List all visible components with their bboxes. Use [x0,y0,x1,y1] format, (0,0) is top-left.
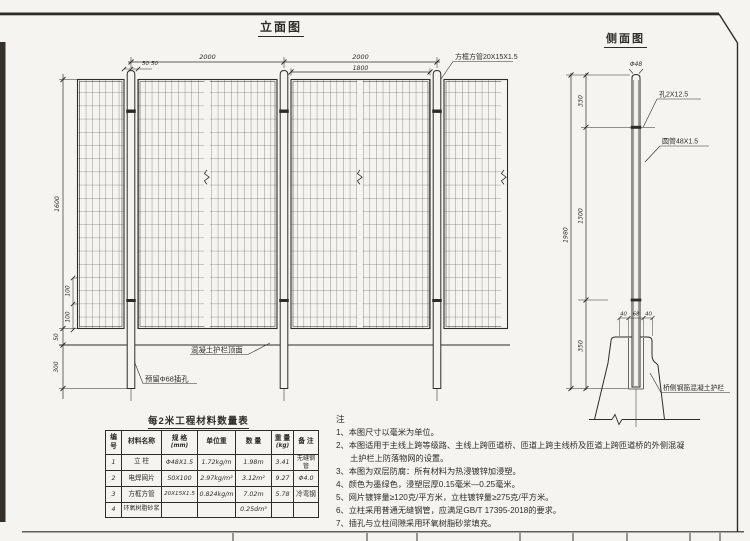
dim-mid: 1300 [578,208,585,224]
dim-embed-side: 350 [578,340,585,352]
cell-spec: 50X100 [162,471,198,487]
cell-unit: 2.97kg/m² [198,471,236,487]
dim-gap1: 50 [142,61,150,67]
table-row: 2 电焊网片 50X100 2.97kg/m² 3.12m² 9.27 Φ4.0 [106,471,319,487]
post-centerlines [131,389,437,402]
cell-name: 方框方管 [122,487,162,503]
notes-heading: 注 [336,413,688,426]
header-remark: 备 注 [294,431,319,455]
cell-weight [272,503,294,518]
header-no: 编号 [106,431,122,455]
cell-unit: 0.824kg/m [198,487,236,503]
frame-tube-label: 方框方管20X15X1.5 [455,52,518,61]
dim-row2: 100 [66,311,72,322]
dim-row1: 100 [66,285,72,296]
cell-weight: 3.41 [272,455,294,471]
header-name: 材料名称 [122,431,162,455]
front-view-title: 立面图 [258,18,304,37]
dim-height: 1600 [54,196,61,212]
tube-label: 圆管48X1.5 [662,137,698,146]
cell-remark: 冷弯钢 [294,487,319,503]
cell-name: 环氧树脂砂浆 [122,503,162,518]
concrete-top-label: 混凝土护栏顶面 [191,346,243,355]
notes-block: 注 1、本图尺寸以毫米为单位。 2、本图适用于主线上跨等级路、主线上跨匝道桥、匝… [336,413,688,530]
barrier-profile [589,337,700,425]
materials-table-title: 每2米工程材料数量表 [148,413,249,429]
title-block-ticks [233,533,720,541]
note-item: 2、本图适用于主线上跨等级路、主线上跨匝道桥、匝道上跨主线桥及匝道上跨匝道桥的外… [336,439,688,465]
dim-span1: 2000 [199,53,216,61]
cell-no: 1 [106,455,122,471]
note-item: 7、插孔与立柱间隙采用环氧树脂砂浆填充。 [336,517,688,530]
table-row: 4 环氧树脂砂浆 0.25dm³ [106,503,319,518]
dim-total: 1980 [563,227,570,243]
dim-embed: 300 [54,361,60,372]
cell-weight: 5.78 [272,487,294,503]
header-weight: 重 量(kg) [272,431,294,455]
table-header-row: 编号 材料名称 规 格(mm) 单位重 数 量 重 量(kg) 备 注 [106,431,319,455]
dim-base-mid: 68 [633,312,640,318]
cell-remark [294,503,319,518]
dim-gap2: 50 [151,61,159,67]
cell-remark: 无缝钢管 [294,455,319,471]
note-item: 6、立柱采用普通无缝钢管，应满足GB/T 17395-2018的要求。 [336,504,688,517]
cell-qty: 0.25dm³ [236,503,272,518]
side-view-title: 侧面图 [604,30,647,48]
side-post [620,75,655,428]
header-quantity: 数 量 [236,431,272,455]
table-row: 3 方框方管 20X15X1.5 0.824kg/m 7.02m 5.78 冷弯… [106,487,319,503]
drawing-sheet: 2000 2000 1800 50 50 1600 100 100 50 300 [0,0,750,541]
note-item: 5、网片镀锌量≥120克/平方米，立柱镀锌量≥275克/平方米。 [336,491,688,504]
hole-label: 孔2X12.5 [659,91,688,99]
side-view: 1980 330 1300 350 Φ48 40 68 40 孔2X12.5 圆… [563,61,731,427]
note-item: 3、本图为双层防腐：所有材料为热浸镀锌加浸塑。 [336,465,688,478]
cell-spec [162,503,198,518]
mesh-panels [78,80,508,329]
cell-qty: 7.02m [236,487,272,503]
dim-panel: 1800 [353,65,369,72]
cell-remark: Φ4.0 [294,471,319,487]
dim-top: 330 [578,95,585,107]
front-view: 2000 2000 1800 50 50 1600 100 100 50 300 [54,52,518,401]
note-item: 4、颜色为墨绿色，浸塑层厚0.15毫米—0.25毫米。 [336,478,688,491]
cell-no: 2 [106,471,122,487]
dim-base-right: 40 [645,312,652,318]
cell-spec: 20X15X1.5 [162,487,198,503]
cell-weight: 9.27 [272,471,294,487]
cell-qty: 1.98m [236,455,272,471]
dim-post-dia: Φ48 [630,61,643,68]
dim-span2: 2000 [352,53,369,61]
dim-clearance: 50 [54,333,60,341]
header-unit-weight: 单位重 [198,431,236,455]
cell-no: 4 [106,503,122,518]
note-item: 1、本图尺寸以毫米为单位。 [336,426,688,439]
materials-table: 编号 材料名称 规 格(mm) 单位重 数 量 重 量(kg) 备 注 1 立 … [105,430,319,518]
barrier-label: 桥侧钢筋混凝土护栏 [663,383,724,392]
scan-edge [0,42,6,522]
cell-name: 电焊网片 [122,471,162,487]
cell-unit: 1.72kg/m [198,455,236,471]
cell-unit [198,503,236,518]
cell-spec: Φ48X1.5 [162,455,198,471]
table-row: 1 立 柱 Φ48X1.5 1.72kg/m 1.98m 3.41 无缝钢管 [106,455,319,471]
insert-hole-label: 预留Φ68插孔 [145,375,189,384]
header-spec: 规 格(mm) [162,431,198,455]
cell-qty: 3.12m² [236,471,272,487]
cell-name: 立 柱 [122,455,162,471]
dim-base-left: 40 [620,312,627,318]
cell-no: 3 [106,487,122,503]
post-collar-band [631,299,642,302]
